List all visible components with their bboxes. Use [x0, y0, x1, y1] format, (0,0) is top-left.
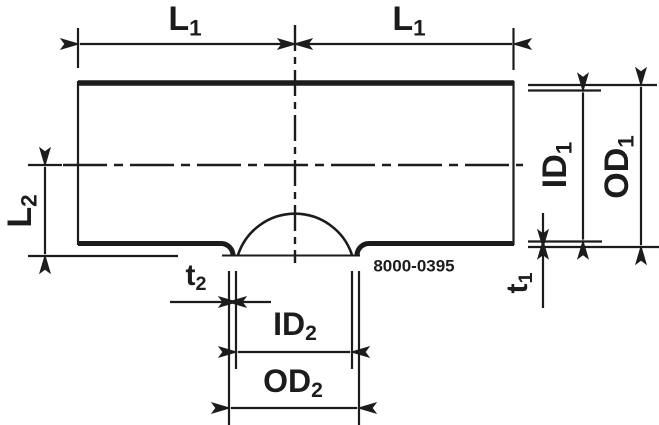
label-t1: t1 [503, 272, 533, 293]
label-l1-right-main: L [392, 0, 413, 38]
label-od1: OD1 [600, 135, 634, 198]
label-l1-right-sub: 1 [413, 17, 425, 39]
label-t2-main: t [185, 259, 195, 292]
part-number: 8000-0395 [373, 258, 454, 275]
tee-diagram-linework [0, 0, 659, 425]
label-od2: OD2 [263, 365, 323, 397]
label-l2: L2 [3, 194, 37, 227]
label-od2-sub: 2 [311, 380, 323, 401]
label-l1-left-main: L [168, 0, 189, 38]
label-l1-left-sub: 1 [189, 17, 201, 39]
label-od1-sub: 1 [615, 135, 637, 147]
body-bottom-wall-left [78, 244, 233, 256]
dimension-lines [45, 44, 641, 408]
label-t2-sub: 2 [195, 275, 206, 295]
label-id2-sub: 2 [305, 323, 317, 344]
branch-tube-walls [229, 271, 359, 425]
centerlines [63, 25, 523, 263]
label-id2: ID2 [273, 308, 317, 340]
label-l1-right: L1 [392, 2, 425, 36]
label-id1-sub: 1 [553, 142, 575, 154]
tee-fitting-dimension-drawing: L1 L1 L2 ID1 OD1 t1 t2 ID2 OD2 8000-0395 [0, 0, 659, 425]
label-t1-main: t [501, 284, 534, 294]
label-l1-left: L1 [168, 2, 201, 36]
label-id2-main: ID [273, 306, 305, 342]
label-l2-main: L [1, 207, 39, 228]
label-l2-sub: 2 [18, 194, 40, 206]
label-id1: ID1 [538, 142, 572, 188]
label-od2-main: OD [263, 363, 311, 399]
label-t2: t2 [185, 261, 206, 291]
body-bottom-wall-right [357, 244, 514, 256]
label-od1-main: OD [598, 148, 636, 199]
label-id1-main: ID [536, 154, 574, 188]
label-t1-sub: 1 [517, 272, 537, 283]
